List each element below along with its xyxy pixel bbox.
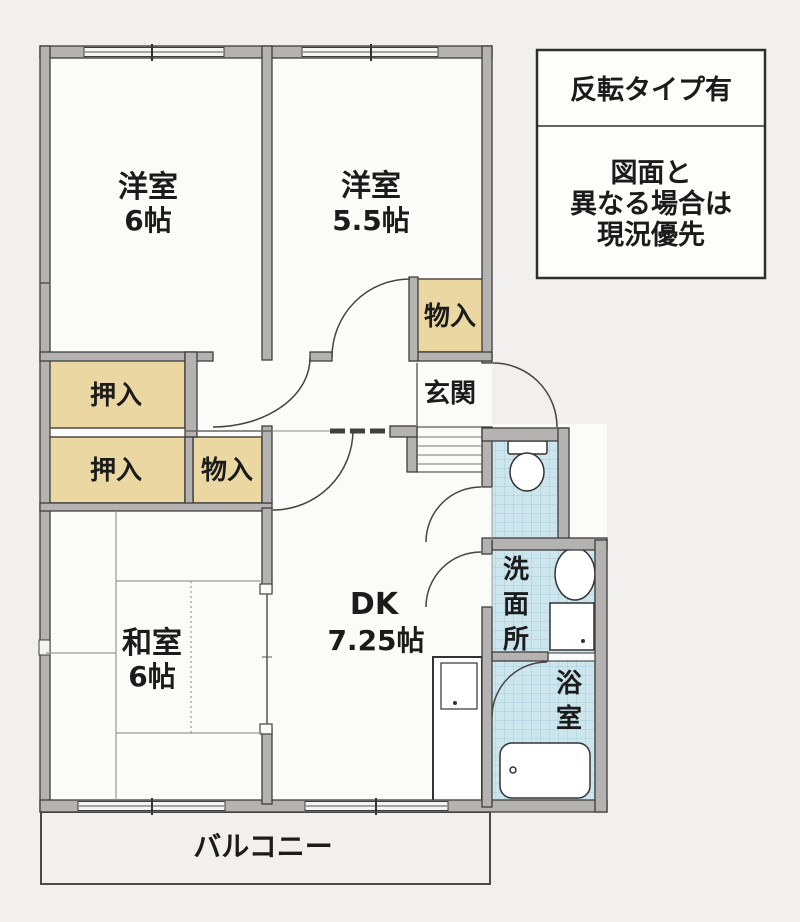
room-label-yoshitsu55: 洋室 [341,169,401,204]
closet-label-monoire-hall: 物入 [201,456,253,486]
room-label-yokushitsu-1: 浴 [556,669,583,699]
wall-washroom-left-stub [482,538,492,554]
balcony-label: バルコニー [193,830,332,863]
room-label-dk: DK [350,587,400,622]
wall-wet-right [595,540,607,812]
wall-washitsu-top [40,503,272,511]
kitchen-sink-icon [441,663,477,709]
wall-dk-right-lower [482,607,492,807]
note-line3: 異なる場合は [570,188,732,220]
room-label-yoshitsu6: 洋室 [118,170,178,205]
room-label-genkan: 玄関 [424,378,476,409]
wall-left [40,46,50,812]
closet-label-monoire-bedroom: 物入 [424,302,476,332]
room-size-yoshitsu6: 6帖 [124,204,171,237]
kitchen-faucet-icon [453,701,457,705]
bathtub-icon [500,743,590,798]
room-label-yokushitsu-2: 室 [556,703,582,734]
toilet-tank-icon [508,441,547,454]
entrance-step [417,427,483,472]
entrance-door-opening [481,363,492,427]
toilet-bowl-icon [510,453,544,491]
wall-toilet-top [482,428,568,441]
wall-mid-seg2 [310,352,332,361]
closet-label-oshiire-upper: 押入 [90,381,142,411]
wall-closet-divider [185,437,193,505]
room-label-senmenjo-3: 所 [503,625,529,655]
note-line4: 現況優先 [597,220,705,251]
room-label-senmenjo-1: 洗 [503,555,529,585]
wall-dk-left-upper [262,426,272,503]
wall-washitsu-dk-lower [262,728,272,804]
wall-bedroom-divider [262,46,272,360]
room-label-washitsu: 和室 [122,626,182,661]
wall-washitsu-dk-upper [262,508,272,591]
wall-mid-right [410,352,492,361]
wall-toilet-right [558,428,569,550]
washing-machine-dot [581,639,585,643]
closet-label-oshiire-lower: 押入 [90,456,142,486]
wall-right-upper [482,46,492,363]
room-size-yoshitsu55: 5.5帖 [332,204,410,237]
note-line2: 図面と [611,158,692,189]
note-line1: 反転タイプ有 [570,75,732,106]
floor-plan-page: 洋室 6帖 洋室 5.5帖 押入 押入 物入 物入 玄関 DK 7.25帖 和室… [0,0,800,922]
room-size-washitsu: 6帖 [128,660,175,693]
wall-mid-left [40,352,187,361]
floor-plan-drawing: 洋室 6帖 洋室 5.5帖 押入 押入 物入 物入 玄関 DK 7.25帖 和室… [0,0,800,922]
wall-hall-left [185,352,197,437]
wall-hall-dk-stub [390,426,417,437]
washbasin-icon [555,548,595,600]
wall-washroom-top [492,538,607,550]
washing-machine-icon [550,603,594,650]
wall-monoire-left [409,277,418,361]
room-label-senmenjo-2: 面 [503,590,529,620]
room-size-dk: 7.25帖 [327,624,424,657]
